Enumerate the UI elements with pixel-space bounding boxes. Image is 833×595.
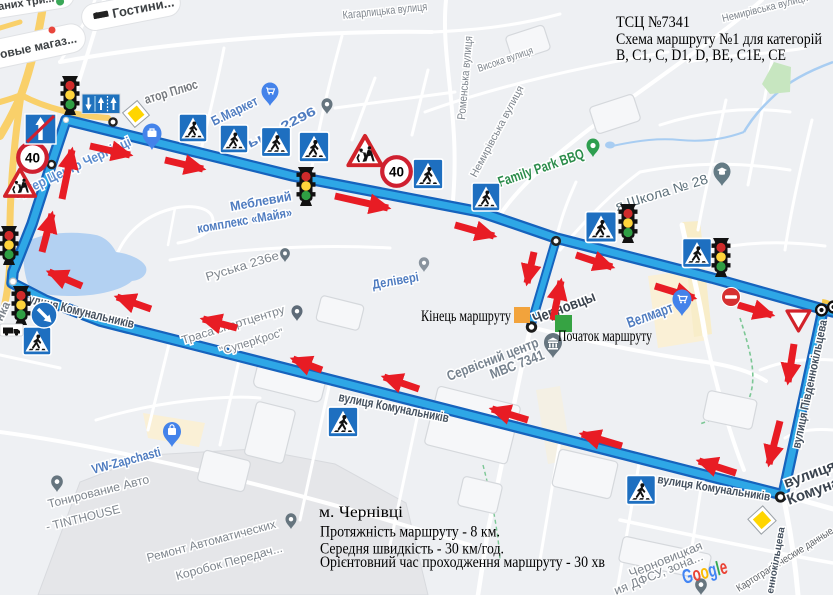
svg-text:Початок маршруту: Початок маршруту (558, 328, 652, 345)
svg-text:Протяжність маршруту - 8 км.: Протяжність маршруту - 8 км. (320, 524, 500, 541)
svg-text:Схема маршруту №1 для категорі: Схема маршруту №1 для категорій (616, 31, 822, 48)
svg-text:Кінець маршруту: Кінець маршруту (421, 308, 511, 325)
svg-text:ТСЦ №7341: ТСЦ №7341 (616, 14, 690, 31)
svg-text:В, С1, С, D1, D, ВЕ, С1Е, СЕ: В, С1, С, D1, D, ВЕ, С1Е, СЕ (616, 47, 786, 64)
svg-text:м. Чернівці: м. Чернівці (319, 504, 404, 521)
svg-text:Орієнтовний час проходження ма: Орієнтовний час проходження маршруту - 3… (320, 554, 605, 571)
